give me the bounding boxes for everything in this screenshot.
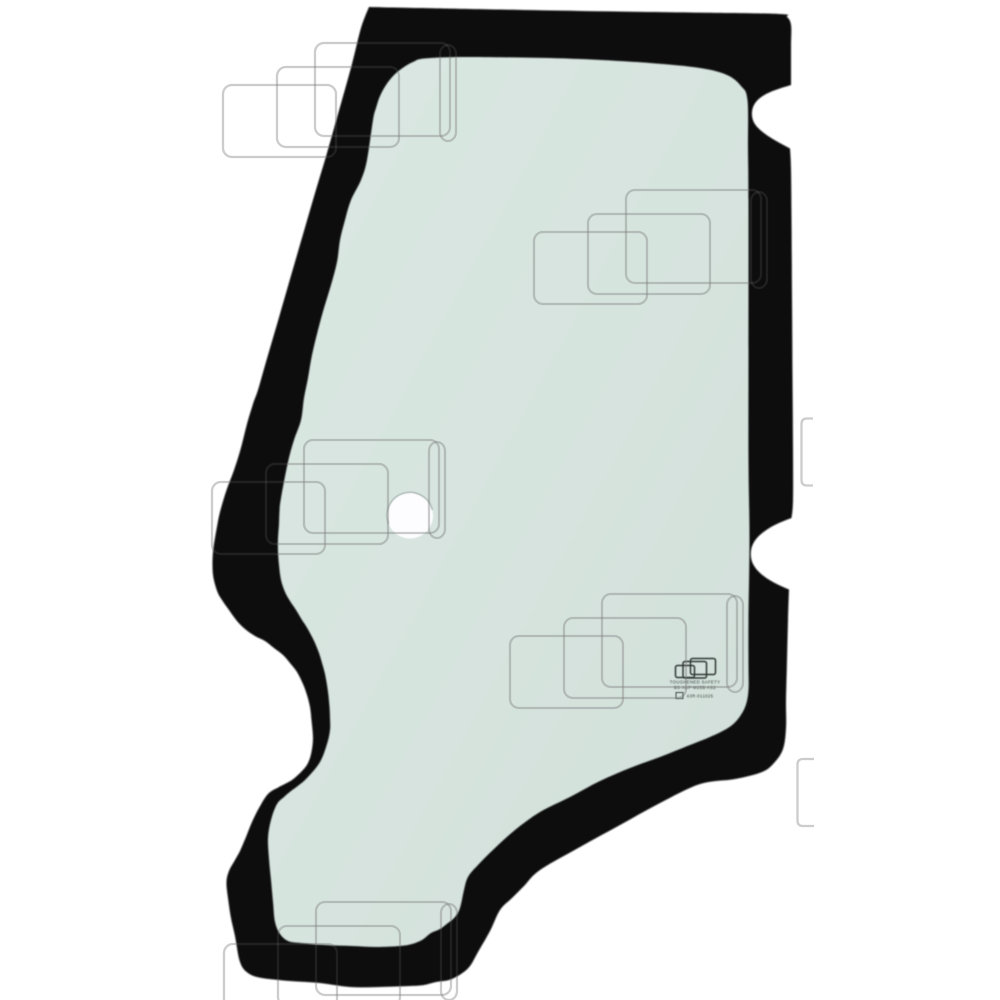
svg-text:TOUGHENED SAFETY: TOUGHENED SAFETY [670,680,721,685]
svg-text:43R-011025: 43R-011025 [687,694,714,699]
